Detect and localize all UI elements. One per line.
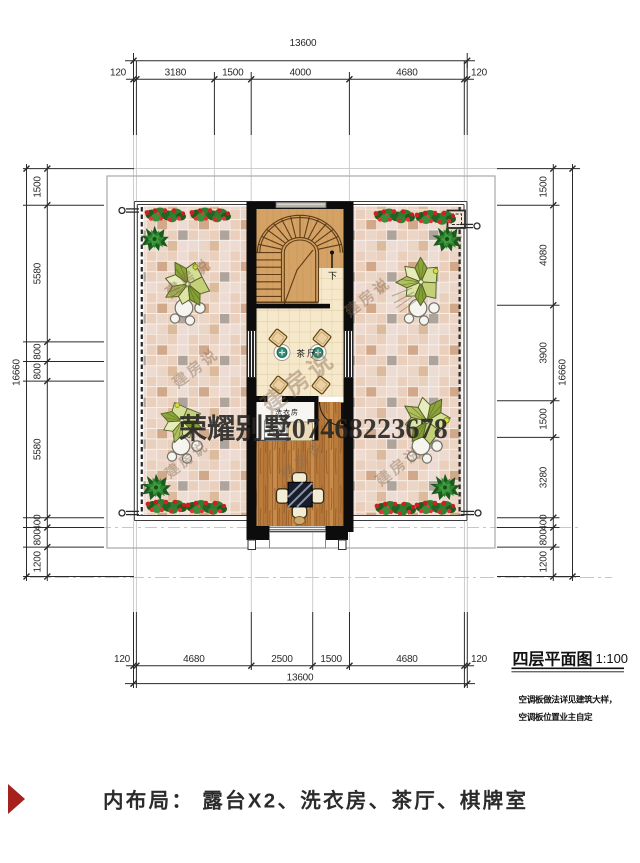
- svg-text:1500: 1500: [33, 176, 44, 198]
- svg-text:3280: 3280: [539, 466, 550, 488]
- svg-text:荣耀别墅07468223678: 荣耀别墅07468223678: [179, 413, 448, 445]
- svg-text:120: 120: [110, 68, 127, 79]
- svg-text:800: 800: [33, 363, 44, 380]
- svg-text:四层平面图: 四层平面图: [513, 651, 593, 669]
- svg-text:空调板做法详见建筑大样，: 空调板做法详见建筑大样，: [519, 694, 617, 705]
- svg-text:2500: 2500: [271, 654, 293, 665]
- svg-text:1500: 1500: [539, 408, 550, 430]
- svg-text:16660: 16660: [558, 358, 569, 385]
- svg-text:4680: 4680: [396, 654, 418, 665]
- svg-text:1200: 1200: [539, 550, 550, 572]
- svg-text:1500: 1500: [320, 654, 342, 665]
- svg-text:4000: 4000: [290, 68, 312, 79]
- svg-text:下: 下: [328, 271, 337, 281]
- svg-text:4680: 4680: [183, 654, 205, 665]
- svg-text:5580: 5580: [33, 262, 44, 284]
- svg-text:800: 800: [33, 343, 44, 360]
- svg-text:13600: 13600: [290, 38, 317, 49]
- svg-text:120: 120: [114, 654, 131, 665]
- svg-text:3900: 3900: [539, 342, 550, 364]
- svg-text:4680: 4680: [396, 68, 418, 79]
- svg-text:800: 800: [33, 529, 44, 546]
- svg-text:800: 800: [539, 529, 550, 546]
- svg-text:4080: 4080: [539, 244, 550, 266]
- svg-text:内布局： 露台X2、洗衣房、茶厅、棋牌室: 内布局： 露台X2、洗衣房、茶厅、棋牌室: [103, 789, 528, 813]
- svg-text:16660: 16660: [12, 358, 23, 385]
- svg-text:13600: 13600: [287, 673, 314, 684]
- svg-text:120: 120: [471, 654, 488, 665]
- svg-text:1200: 1200: [33, 550, 44, 572]
- svg-text:400: 400: [539, 514, 550, 531]
- svg-text:120: 120: [471, 68, 488, 79]
- svg-text:1500: 1500: [539, 176, 550, 198]
- svg-text:空调板位置业主自定: 空调板位置业主自定: [519, 711, 594, 722]
- svg-text:3180: 3180: [165, 68, 187, 79]
- svg-text:5580: 5580: [33, 438, 44, 460]
- svg-text:1500: 1500: [222, 68, 244, 79]
- svg-text:1:100: 1:100: [596, 651, 629, 666]
- svg-text:400: 400: [33, 514, 44, 531]
